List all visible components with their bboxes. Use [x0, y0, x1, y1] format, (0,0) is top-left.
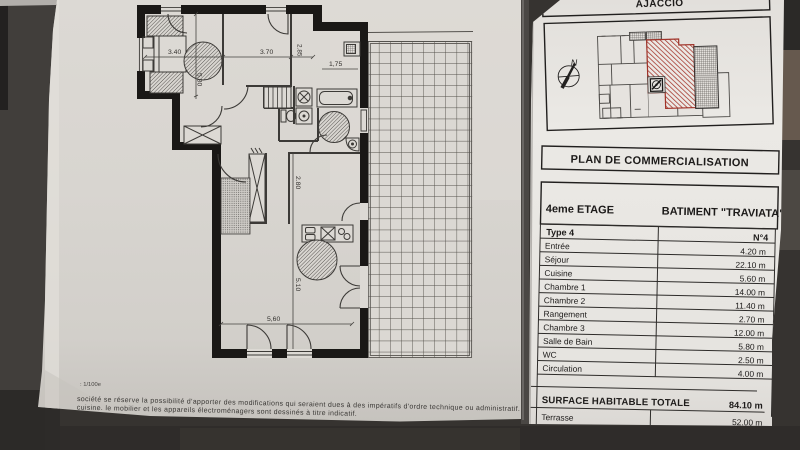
svg-text:Chambre 3: Chambre 3: [543, 322, 585, 333]
svg-text:N: N: [571, 58, 578, 68]
svg-text:: 1/100e: : 1/100e: [80, 382, 101, 388]
svg-text:Salle de Bain: Salle de Bain: [543, 336, 593, 347]
svg-text:Terrasse: Terrasse: [541, 412, 574, 423]
svg-text:Séjour: Séjour: [545, 254, 570, 265]
svg-text:Chambre 1: Chambre 1: [544, 281, 586, 292]
svg-text:BATIMENT "TRAVIATA": BATIMENT "TRAVIATA": [662, 206, 785, 221]
svg-text:N°4: N°4: [753, 232, 768, 242]
svg-text:AJACCIO: AJACCIO: [636, 0, 684, 10]
svg-text:Cuisine: Cuisine: [544, 268, 572, 279]
svg-text:84.10 m: 84.10 m: [729, 400, 763, 411]
svg-text:Rangement: Rangement: [543, 309, 587, 320]
svg-text:2.80: 2.80: [294, 176, 301, 189]
svg-text:12.00 m: 12.00 m: [734, 328, 764, 339]
svg-text:22.10 m: 22.10 m: [735, 260, 765, 271]
svg-text:5.60 m: 5.60 m: [740, 273, 766, 284]
svg-text:5.80 m: 5.80 m: [738, 341, 764, 352]
svg-text:Entrée: Entrée: [545, 241, 570, 252]
svg-text:14.00 m: 14.00 m: [735, 287, 765, 298]
svg-text:3.40: 3.40: [168, 49, 181, 56]
svg-text:Circulation: Circulation: [542, 363, 582, 374]
svg-text:5.10: 5.10: [294, 278, 301, 291]
svg-text:Type 4: Type 4: [546, 227, 574, 238]
svg-text:4eme ETAGE: 4eme ETAGE: [546, 203, 615, 216]
svg-text:4.00 m: 4.00 m: [738, 369, 764, 380]
svg-text:11.40 m: 11.40 m: [735, 300, 765, 311]
svg-text:2.85: 2.85: [296, 44, 303, 57]
svg-text:2.50 m: 2.50 m: [738, 355, 764, 366]
svg-text:WC: WC: [543, 349, 557, 359]
svg-text:3.70: 3.70: [260, 49, 273, 56]
svg-text:5.30: 5.30: [196, 73, 203, 86]
svg-text:4.20 m: 4.20 m: [740, 246, 766, 257]
svg-text:Chambre 2: Chambre 2: [544, 295, 586, 306]
svg-text:2.70 m: 2.70 m: [739, 314, 765, 325]
svg-text:1,75: 1,75: [329, 61, 342, 68]
svg-text:5,60: 5,60: [267, 316, 280, 323]
